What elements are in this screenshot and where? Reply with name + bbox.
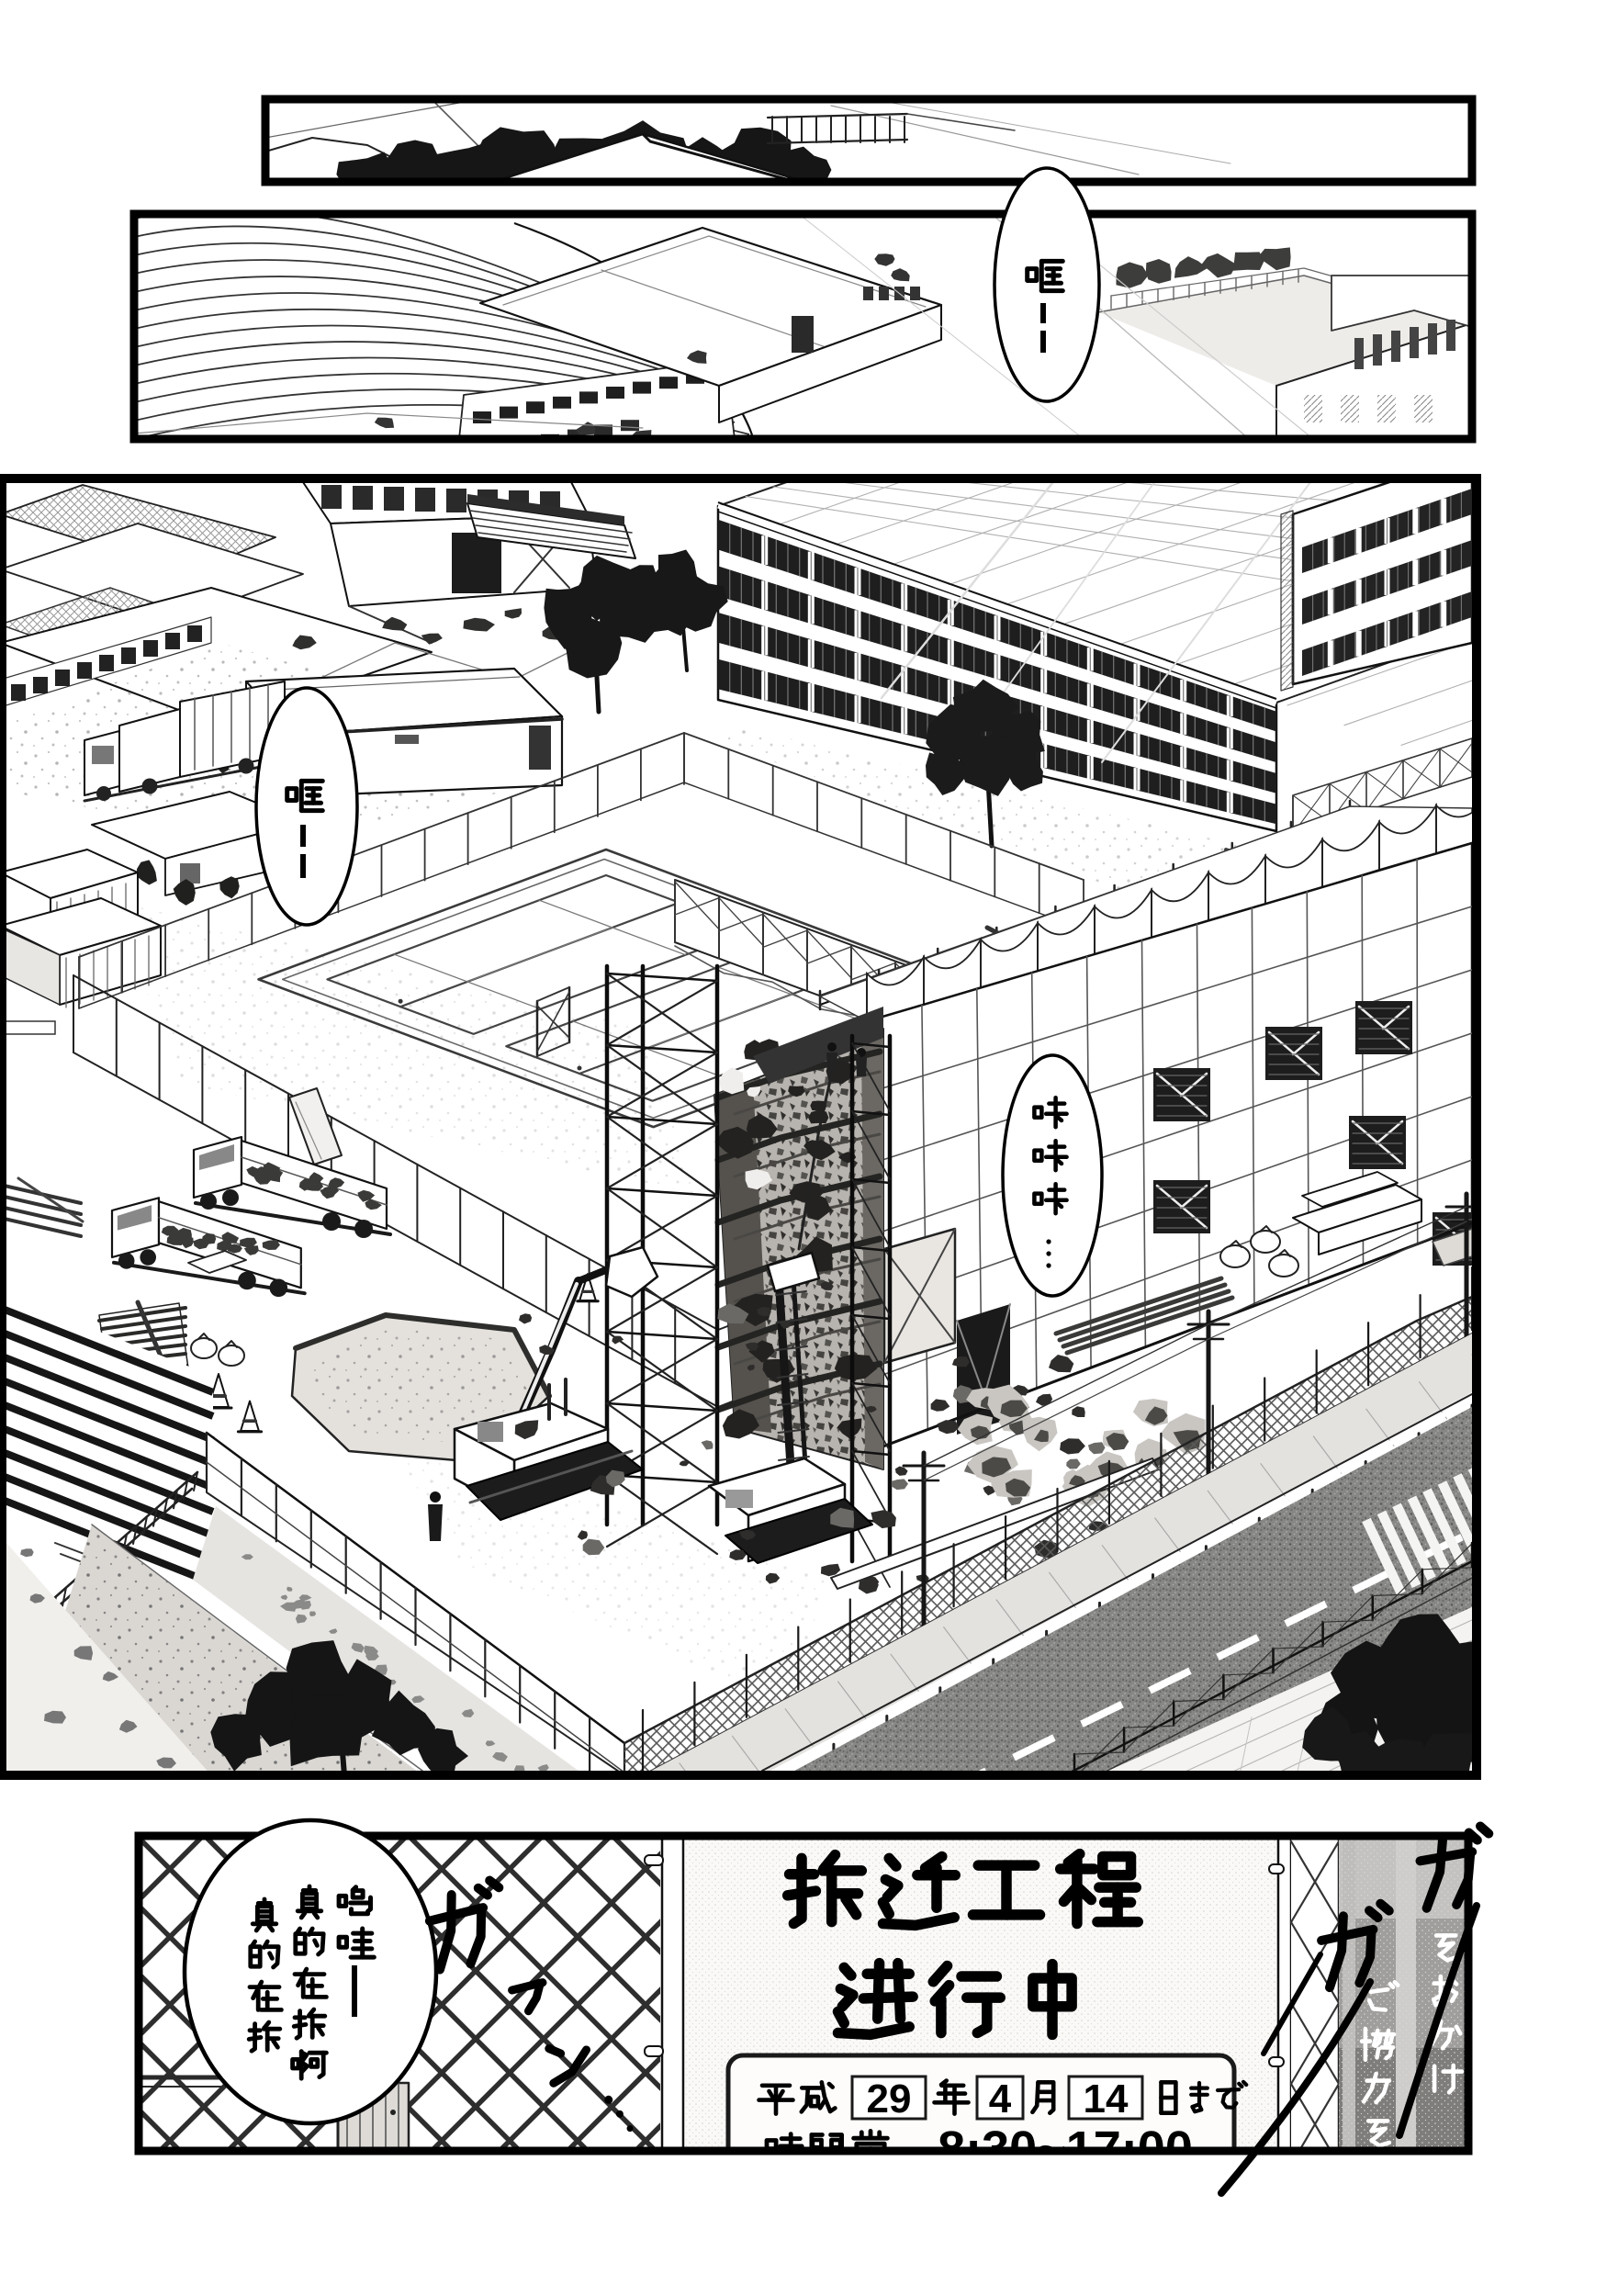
- svg-text:14: 14: [1084, 2077, 1129, 2122]
- svg-text:29: 29: [867, 2077, 912, 2122]
- svg-text:4: 4: [989, 2077, 1012, 2122]
